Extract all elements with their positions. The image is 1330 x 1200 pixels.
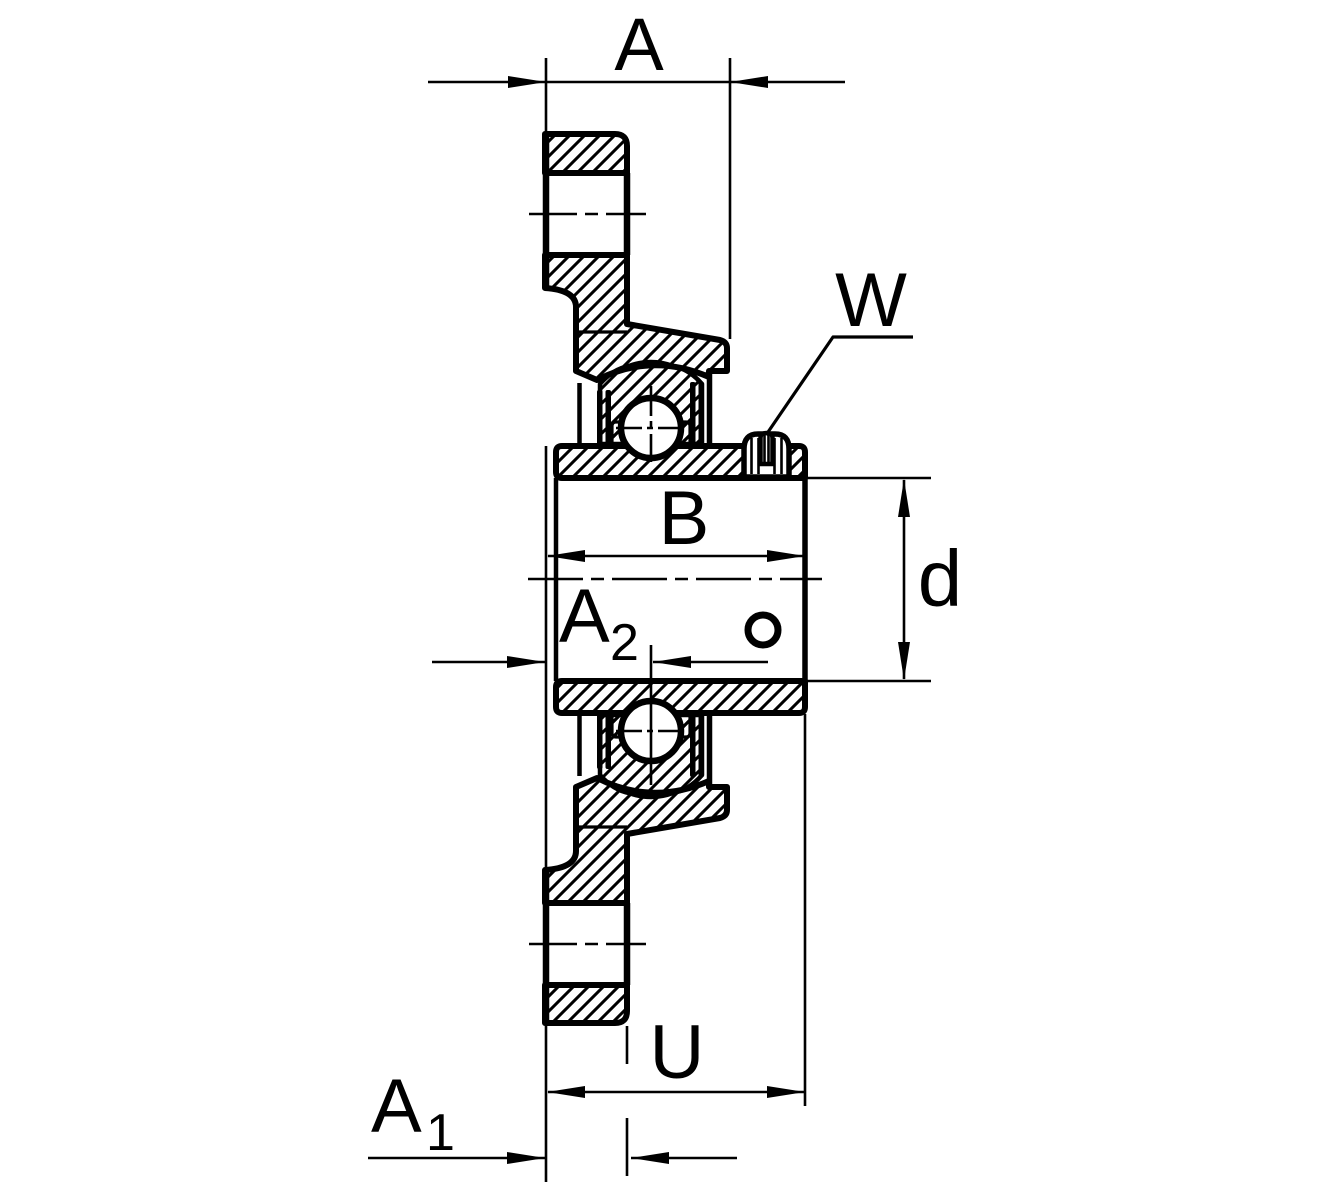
dim-label-a1: A1 [371, 1064, 455, 1162]
dim-u-arrow-left [547, 1086, 585, 1098]
drawing-canvas: A W B A2 d U A1 [0, 0, 1330, 1200]
set-screw [744, 433, 789, 477]
seal-bottom-left-outer [597, 714, 603, 769]
dim-a-arrow-left [508, 76, 546, 88]
dimension-a: A [428, 3, 845, 88]
dim-b-arrow-left [547, 550, 585, 562]
dim-label-d: d [918, 534, 963, 623]
callout-w: W [766, 258, 913, 435]
dim-a2-arrow-right [653, 656, 691, 668]
dimension-a2: A2 [432, 574, 768, 672]
w-leader-line [766, 337, 913, 435]
set-screw-socket [761, 433, 773, 464]
dim-label-a2: A2 [559, 574, 639, 672]
seal-top-left-inner [606, 390, 612, 445]
dimension-d: d [898, 479, 962, 680]
dim-u-arrow-right [767, 1086, 805, 1098]
dim-a2-arrow-left [507, 656, 545, 668]
dim-label-a: A [614, 3, 664, 86]
dim-a1-arrow-left [507, 1152, 545, 1164]
seal-top-left-outer [597, 390, 603, 445]
seal-bottom-right-outer [699, 715, 705, 777]
dim-b-arrow-right [767, 550, 805, 562]
dimension-b: B [547, 476, 805, 562]
inner-ring-section-bottom [556, 681, 805, 713]
flanged-bearing-unit-drawing: A W B A2 d U A1 [0, 0, 1330, 1200]
dim-a1-arrow-right [631, 1152, 669, 1164]
seal-bottom-right-inner [690, 715, 696, 777]
dim-label-w: W [835, 258, 907, 343]
seal-bottom-left-inner [606, 714, 612, 769]
seal-top-right-inner [690, 382, 696, 444]
seal-top-right-outer [699, 382, 705, 444]
flange-section-top [545, 134, 627, 173]
housing-section-top [545, 255, 727, 380]
screw-hole-projection [748, 615, 778, 645]
dim-a-arrow-right [730, 76, 768, 88]
flange-section-bottom [545, 985, 627, 1023]
dim-d-arrow-bottom [898, 642, 910, 680]
dim-label-u: U [650, 1010, 705, 1095]
dim-label-b: B [659, 476, 710, 561]
dim-d-arrow-top [898, 479, 910, 517]
